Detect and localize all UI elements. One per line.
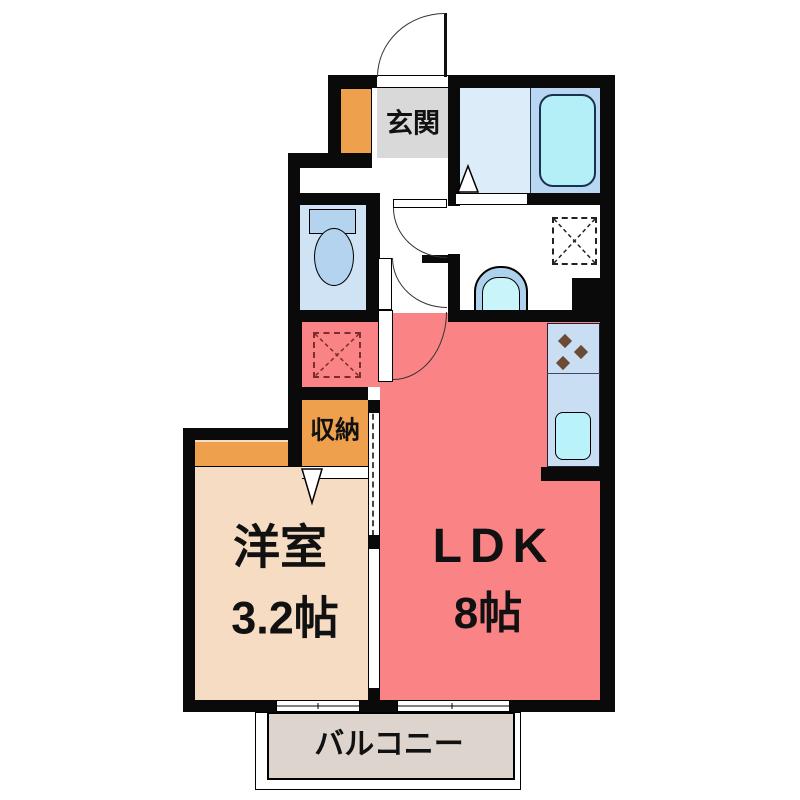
storage-label: 収納 [310,419,360,444]
toilet-door-arc [392,258,447,308]
room-divider-dashed-door [372,404,374,536]
bathroom-door-opening [456,193,527,205]
storage-door-strip [302,467,368,479]
wall [288,153,300,322]
wall [541,467,615,481]
wall [288,387,368,400]
wall [448,75,615,88]
washroom-door-arc [393,208,447,258]
wall [448,310,615,322]
floor-plan: 玄関 収納 洋室 3.2帖 LDK 8帖 バルコニー [0,0,800,800]
ldk-door-leaf [378,310,393,382]
laundry-pan-ldk [313,332,361,378]
western-room-label: 洋室 [233,524,327,571]
closet-band [195,442,290,467]
wall [183,428,195,712]
laundry-pan [552,217,597,265]
washbasin-bowl [482,277,520,313]
wall [288,310,380,322]
wall [600,75,615,712]
entrance-door-arc [377,13,445,77]
western-room-size: 3.2帖 [231,596,339,641]
window [397,700,510,712]
toilet-door-leaf [378,258,392,310]
window [276,700,360,712]
room-divider-track [368,400,380,700]
kitchen-counter-divider [547,373,600,374]
washroom-door-leaf [393,199,447,208]
shoe-cabinet [340,88,372,155]
ldk-size: 8帖 [454,592,522,636]
entrance-label: 玄関 [386,111,440,138]
bathtub [539,94,596,187]
wall [368,535,380,549]
balcony-label: バルコニー [314,730,463,760]
wall [368,400,380,413]
wall [328,75,340,162]
ldk-label: LDK [433,523,556,571]
wall [288,153,372,168]
wall [183,428,302,440]
toilet-bowl [314,228,354,286]
wall [288,193,368,205]
wall [368,688,380,702]
kitchen-sink [555,412,591,460]
washroom-door-opening [448,206,460,254]
